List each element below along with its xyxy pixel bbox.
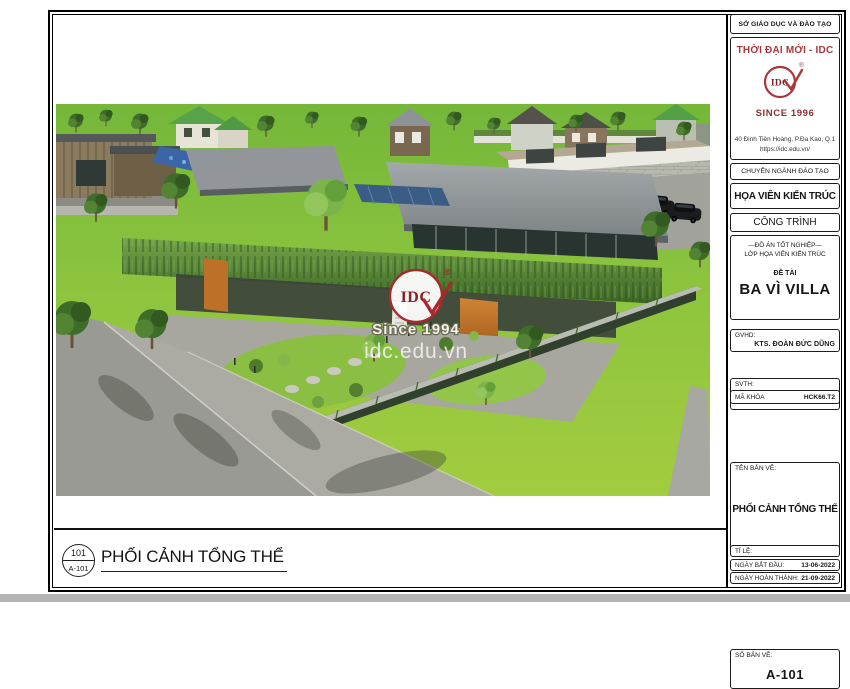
topic-name: BA VÌ VILLA: [739, 281, 830, 298]
titleblock-start-date: NGÀY BẮT ĐẦU: 13-06-2022: [730, 559, 840, 571]
titleblock-department: SỞ GIÁO DỤC VÀ ĐÀO TẠO: [730, 14, 840, 34]
view-title: PHỐI CẢNH TỔNG THỂ: [101, 547, 287, 572]
watermark-website-text: idc.edu.vn: [364, 340, 468, 363]
org-website: https://idc.edu.vn/: [735, 145, 835, 155]
perspective-rendering: IDC ® Since 1994 idc.edu.vn: [56, 100, 710, 496]
advisor-name: KTS. ĐOÀN ĐỨC DŨNG: [754, 341, 835, 348]
drawing-name-label: TÊN BẢN VẼ:: [735, 465, 776, 472]
titleblock-drawing-name: TÊN BẢN VẼ: PHỐI CẢNH TỔNG THỂ: [730, 462, 840, 554]
titleblock-finish-date: NGÀY HOÀN THÀNH: 21-09-2022: [730, 572, 840, 584]
student-label: SVTH:: [735, 381, 754, 388]
titleblock-training-label: CHUYÊN NGÀNH ĐÀO TẠO: [730, 163, 840, 180]
titleblock-project-label: CÔNG TRÌNH: [730, 213, 840, 232]
start-date-value: 13-06-2022: [801, 562, 835, 569]
org-address-line: 40 Đinh Tiên Hoàng, P.Đa Kao, Q.1: [735, 135, 835, 145]
screen-bottom-strip: [0, 594, 850, 602]
org-address: 40 Đinh Tiên Hoàng, P.Đa Kao, Q.1 https:…: [735, 135, 835, 155]
project-type: —ĐỒ ÁN TỐT NGHIỆP—: [748, 242, 822, 249]
sheet-number-label: SỐ BẢN VẼ:: [735, 652, 772, 659]
detail-number: 101: [63, 545, 94, 561]
start-date-label: NGÀY BẮT ĐẦU:: [735, 562, 784, 569]
idc-logo-icon: IDC ®: [754, 57, 816, 107]
finish-date-value: 21-09-2022: [801, 575, 835, 582]
titleblock-sheet-number: SỐ BẢN VẼ: A-101: [730, 649, 840, 689]
titleblock-organization: THỜI ĐẠI MỚI - IDC IDC ® SINCE 1996 40 Đ…: [730, 37, 840, 160]
titleblock-divider: [726, 15, 728, 587]
detail-marker: 101 A-101: [62, 544, 95, 577]
project-class: LỚP HỌA VIÊN KIẾN TRÚC: [744, 251, 825, 258]
topic-label: ĐỀ TÀI: [774, 270, 797, 277]
org-name: THỜI ĐẠI MỚI - IDC: [737, 45, 834, 56]
advisor-label: GVHD:: [735, 332, 755, 339]
titleblock-code: MÃ KHÓA HCK66.T2: [730, 390, 840, 404]
code-label: MÃ KHÓA: [735, 394, 764, 401]
watermark-registered-icon: ®: [444, 267, 451, 277]
drawing-name: PHỐI CẢNH TỔNG THỂ: [731, 504, 839, 515]
footer-divider: [54, 528, 726, 530]
titleblock-scale: TỈ LỆ:: [730, 545, 840, 557]
titleblock-advisor: GVHD: KTS. ĐOÀN ĐỨC DŨNG: [730, 329, 840, 352]
org-since: SINCE 1996: [756, 108, 815, 119]
code-value: HCK66.T2: [804, 394, 835, 401]
finish-date-label: NGÀY HOÀN THÀNH:: [735, 575, 799, 582]
watermark-since-text: Since 1994: [372, 321, 460, 338]
registered-icon: ®: [799, 61, 804, 69]
scale-label: TỈ LỆ:: [735, 548, 752, 555]
titleblock-project: —ĐỒ ÁN TỐT NGHIỆP— LỚP HỌA VIÊN KIẾN TRÚ…: [730, 235, 840, 320]
sheet-number: A-101: [731, 667, 839, 682]
titleblock-major: HỌA VIÊN KIẾN TRÚC: [730, 183, 840, 209]
